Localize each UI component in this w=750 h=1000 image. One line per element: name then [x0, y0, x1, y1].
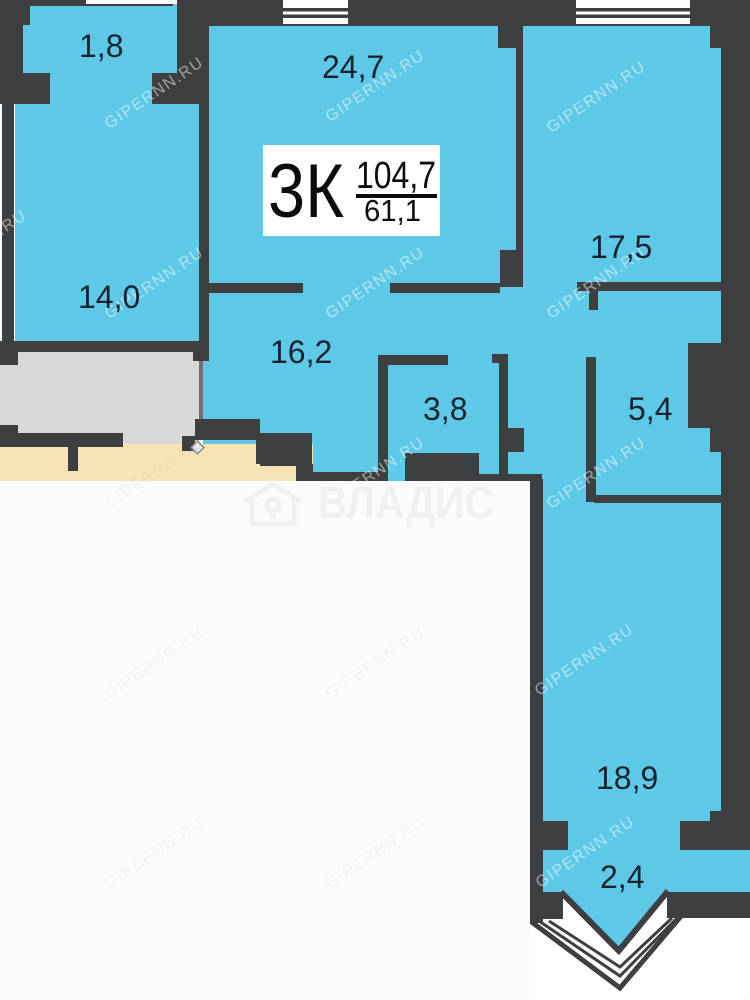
svg-text:18,9: 18,9 — [596, 760, 658, 796]
svg-text:24,7: 24,7 — [322, 49, 384, 85]
svg-text:14,0: 14,0 — [78, 279, 140, 315]
svg-text:61,1: 61,1 — [364, 193, 421, 228]
svg-text:3К: 3К — [268, 149, 344, 234]
svg-text:5,4: 5,4 — [628, 391, 672, 427]
svg-text:ВЛАДИС: ВЛАДИС — [318, 477, 494, 528]
svg-text:3,8: 3,8 — [423, 391, 467, 427]
svg-text:17,5: 17,5 — [590, 229, 652, 265]
svg-text:1,8: 1,8 — [79, 28, 123, 64]
svg-text:104,7: 104,7 — [356, 155, 436, 197]
svg-text:16,2: 16,2 — [270, 334, 332, 370]
svg-text:2,4: 2,4 — [600, 859, 644, 895]
